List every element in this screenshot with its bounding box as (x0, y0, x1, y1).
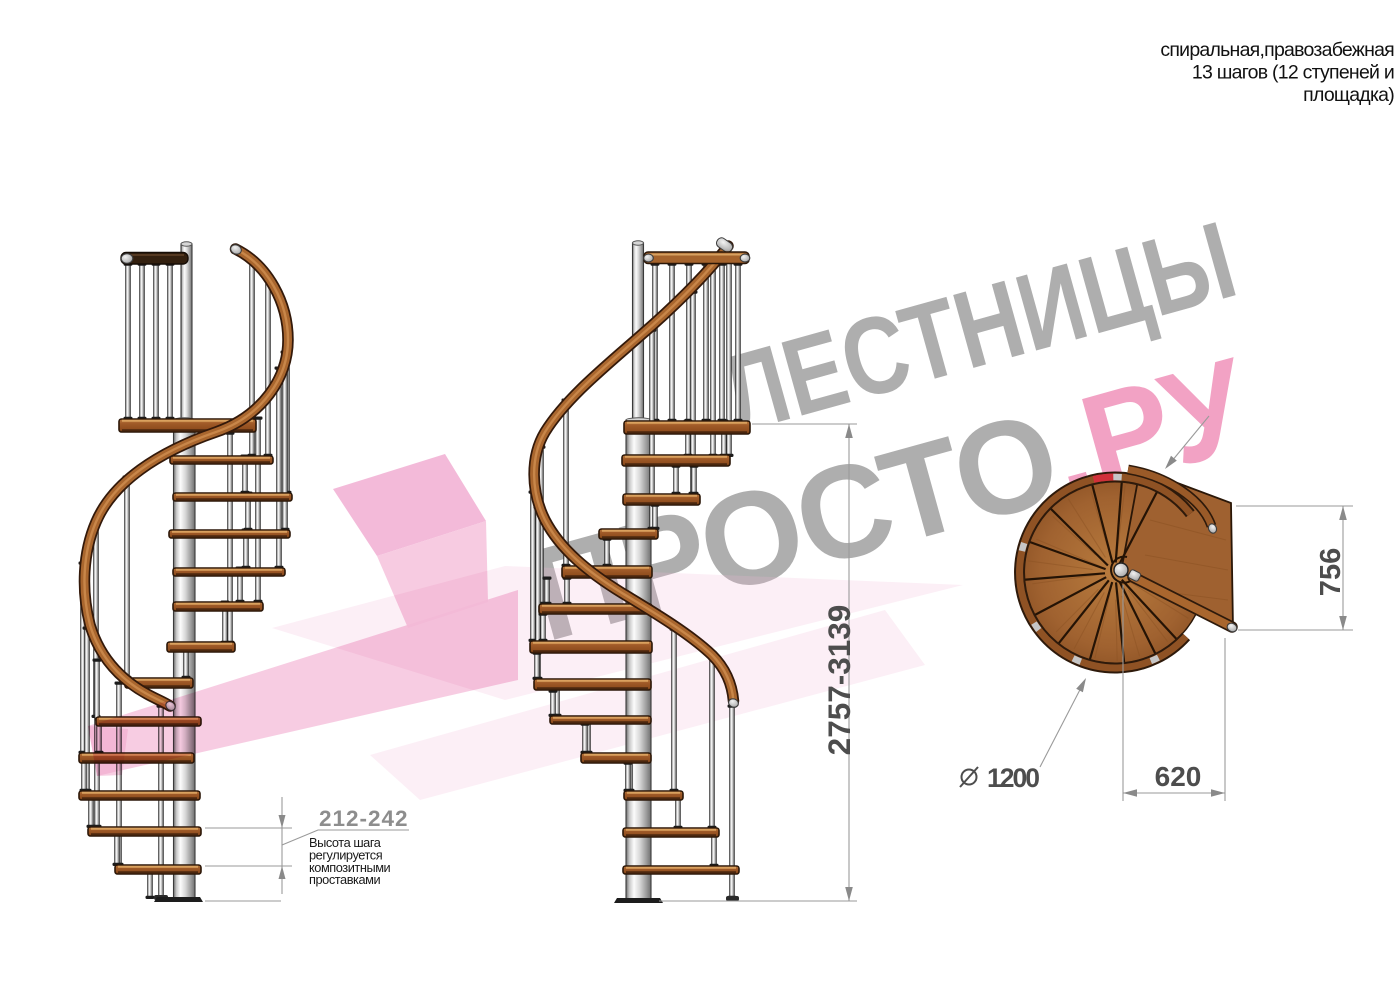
svg-text:756: 756 (1315, 548, 1347, 596)
svg-text:Высота шагарегулируетсякомпози: Высота шагарегулируетсякомпозитнымипрост… (309, 835, 391, 887)
svg-text:620: 620 (1155, 761, 1202, 792)
svg-text:1200: 1200 (987, 763, 1039, 793)
svg-text:2757-3139: 2757-3139 (821, 605, 857, 756)
svg-text:212-242: 212-242 (319, 806, 409, 831)
